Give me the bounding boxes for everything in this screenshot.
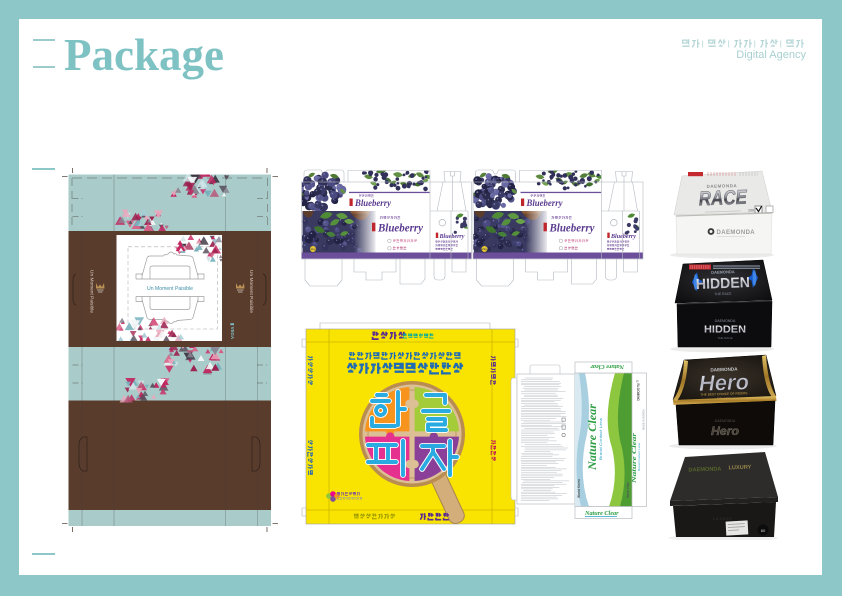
svg-text:Blueberry: Blueberry (526, 199, 564, 209)
svg-text:Blueberry: Blueberry (377, 221, 424, 235)
svg-text:World Korea: World Korea (577, 479, 581, 498)
svg-text:2kg: 2kg (311, 247, 316, 251)
svg-text:Nature Clear: Nature Clear (585, 404, 599, 471)
svg-text:60: 60 (761, 528, 766, 533)
svg-text:Hana Vilac: Hana Vilac (626, 482, 630, 498)
svg-text:DAEMONDA: DAEMONDA (715, 319, 736, 323)
svg-text:THE RACE: THE RACE (717, 336, 732, 340)
svg-text:HIDDEN: HIDDEN (704, 325, 746, 336)
svg-text:DAEMONDA: DAEMONDA (711, 269, 735, 275)
svg-text:HIDDEN: HIDDEN (696, 275, 751, 293)
svg-text:LUXURY: LUXURY (713, 517, 733, 521)
svg-text:THE RACE: THE RACE (714, 292, 732, 297)
svg-text:Brand Contact Lens: Brand Contact Lens (638, 442, 641, 471)
svg-text:Nature Clear: Nature Clear (590, 363, 625, 370)
svg-text:DAEMONDA: DAEMONDA (715, 419, 736, 423)
svg-text:2kg: 2kg (482, 247, 487, 251)
svg-text:100: 100 (748, 209, 754, 213)
svg-text:DRY-5000: DRY-5000 (717, 396, 731, 400)
svg-text:MADE IN KOREA: MADE IN KOREA (642, 409, 646, 430)
svg-text:Blueberry: Blueberry (354, 199, 392, 209)
svg-text:Blueberry: Blueberry (610, 234, 636, 240)
svg-text:Nature Clear: Nature Clear (584, 510, 619, 517)
svg-text:▮ VEGA: ▮ VEGA (230, 323, 235, 340)
svg-text:Blueberry: Blueberry (549, 221, 596, 235)
svg-text:DAEMONDA: DAEMONDA (688, 466, 721, 473)
svg-text:Hero: Hero (711, 424, 739, 438)
svg-text:LUXURY: LUXURY (728, 465, 751, 472)
svg-text:Un Moment Paisible: Un Moment Paisible (89, 270, 95, 313)
svg-text:Nature Clear: Nature Clear (631, 432, 638, 484)
svg-text:DAEMONDA: DAEMONDA (717, 230, 756, 236)
svg-text:Un Moment Paisible: Un Moment Paisible (147, 286, 193, 292)
svg-text:△ BLOOMING: △ BLOOMING (636, 379, 640, 401)
svg-text:Un Moment Paisible: Un Moment Paisible (248, 270, 254, 313)
svg-text:RACE: RACE (698, 187, 747, 211)
svg-text:Brand Contact Lens: Brand Contact Lens (599, 417, 603, 460)
svg-text:Blueberry: Blueberry (438, 234, 464, 240)
